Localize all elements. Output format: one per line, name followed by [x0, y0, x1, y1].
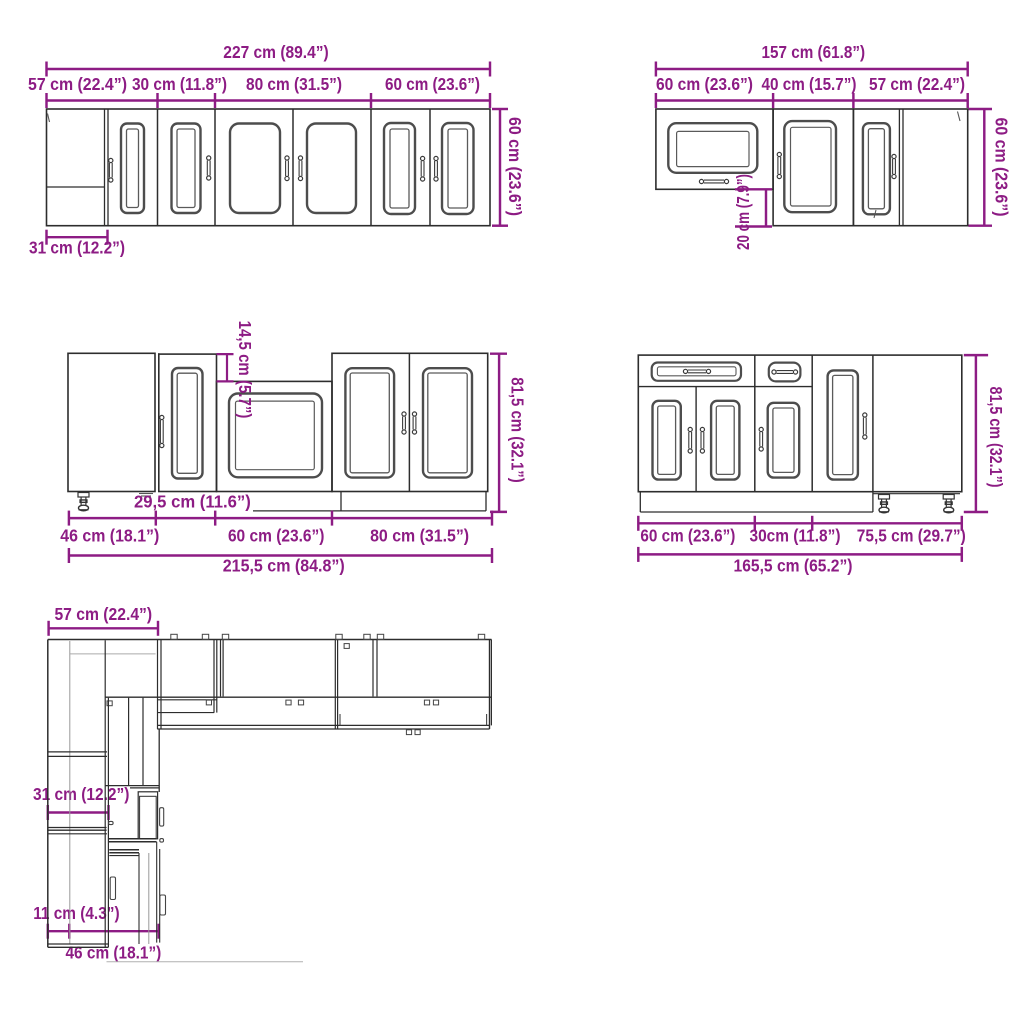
svg-text:215,5 cm (84.8”): 215,5 cm (84.8”): [223, 556, 345, 576]
svg-text:165,5 cm (65.2”): 165,5 cm (65.2”): [734, 556, 853, 576]
svg-text:46 cm (18.1”): 46 cm (18.1”): [60, 526, 159, 546]
svg-text:60 cm (23.6”): 60 cm (23.6”): [992, 118, 1012, 217]
svg-text:57 cm (22.4”): 57 cm (22.4”): [54, 604, 152, 624]
svg-text:57 cm (22.4”): 57 cm (22.4”): [28, 74, 127, 94]
svg-text:20 cm (7.9”): 20 cm (7.9”): [733, 174, 753, 250]
svg-text:60 cm (23.6”): 60 cm (23.6”): [640, 526, 735, 546]
svg-text:80 cm (31.5”): 80 cm (31.5”): [246, 74, 342, 94]
svg-text:57 cm (22.4”): 57 cm (22.4”): [869, 74, 965, 94]
svg-text:157 cm (61.8”): 157 cm (61.8”): [762, 42, 866, 62]
svg-text:40 cm (15.7”): 40 cm (15.7”): [762, 74, 857, 94]
svg-text:60 cm (23.6”): 60 cm (23.6”): [656, 74, 753, 94]
svg-text:31 cm (12.2”): 31 cm (12.2”): [29, 238, 125, 258]
svg-text:60 cm (23.6”): 60 cm (23.6”): [505, 117, 525, 216]
svg-text:11 cm (4.3”): 11 cm (4.3”): [33, 903, 119, 923]
svg-text:81,5 cm (32.1”): 81,5 cm (32.1”): [986, 387, 1006, 488]
svg-text:46 cm (18.1”): 46 cm (18.1”): [66, 943, 162, 963]
svg-text:30cm (11.8”): 30cm (11.8”): [750, 526, 841, 546]
svg-text:60 cm (23.6”): 60 cm (23.6”): [385, 74, 480, 94]
svg-text:227 cm (89.4”): 227 cm (89.4”): [223, 42, 328, 62]
svg-text:29,5 cm (11.6”): 29,5 cm (11.6”): [134, 492, 251, 512]
svg-text:75,5 cm (29.7”): 75,5 cm (29.7”): [857, 526, 966, 546]
svg-text:30 cm (11.8”): 30 cm (11.8”): [132, 74, 227, 94]
svg-text:80 cm (31.5”): 80 cm (31.5”): [370, 526, 469, 546]
svg-text:14,5 cm (5.7”): 14,5 cm (5.7”): [235, 321, 255, 419]
svg-text:81,5 cm (32.1”): 81,5 cm (32.1”): [508, 377, 528, 483]
svg-text:60 cm (23.6”): 60 cm (23.6”): [228, 526, 325, 546]
